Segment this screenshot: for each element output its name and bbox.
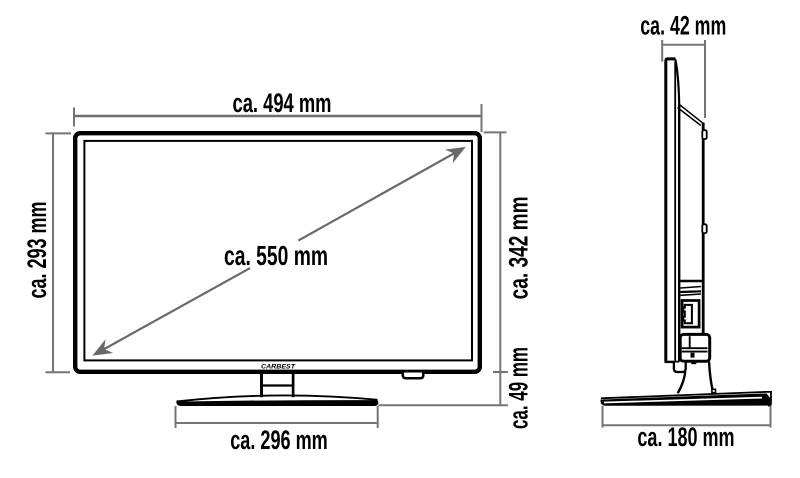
svg-text:ca. 49 mm: ca. 49 mm — [504, 347, 534, 429]
svg-text:ca. 180 mm: ca. 180 mm — [637, 422, 734, 452]
svg-text:ca. 42 mm: ca. 42 mm — [640, 11, 726, 41]
svg-text:ca. 494 mm: ca. 494 mm — [233, 88, 332, 118]
svg-text:ca. 342 mm: ca. 342 mm — [504, 196, 534, 299]
svg-text:CARBEST: CARBEST — [261, 364, 296, 371]
svg-text:ca. 296 mm: ca. 296 mm — [230, 425, 328, 455]
svg-text:ca. 550 mm: ca. 550 mm — [224, 240, 328, 271]
svg-text:ca. 293 mm: ca. 293 mm — [22, 202, 52, 299]
